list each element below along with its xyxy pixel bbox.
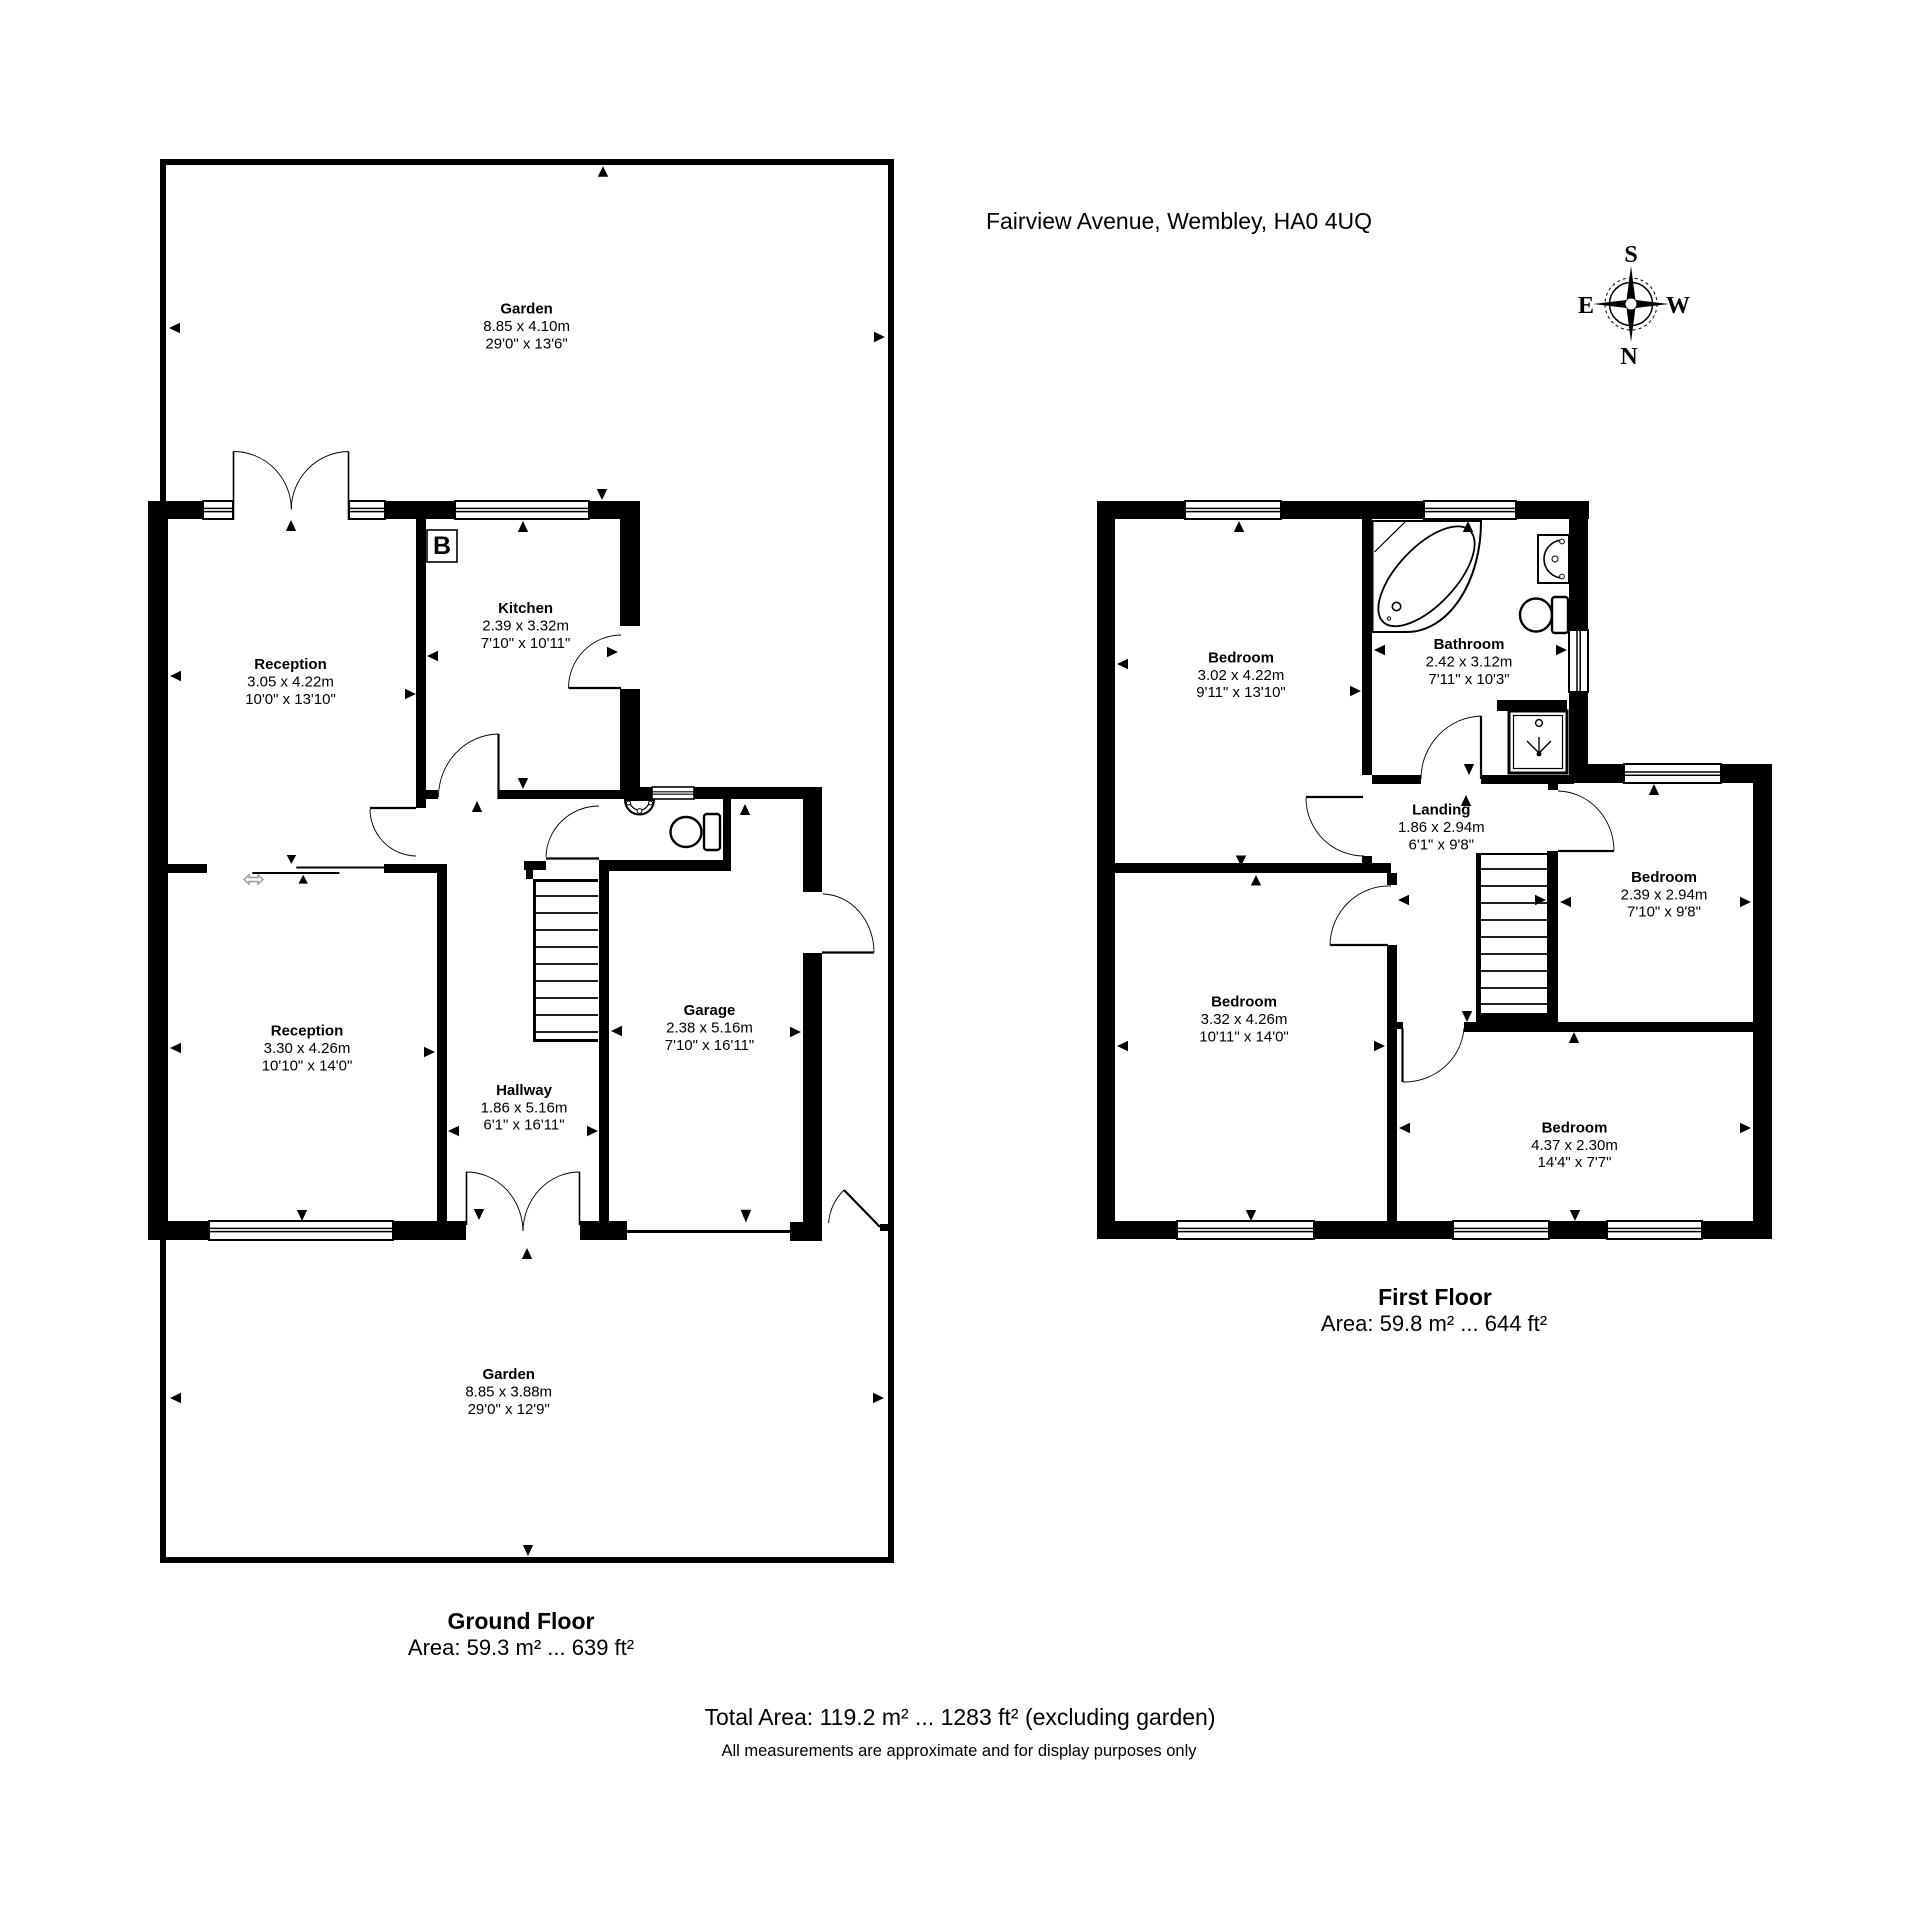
svg-text:3.30 x 4.26m: 3.30 x 4.26m bbox=[264, 1040, 351, 1057]
svg-text:Bedroom: Bedroom bbox=[1631, 869, 1697, 886]
svg-text:Garden: Garden bbox=[500, 301, 553, 318]
svg-text:1.86 x 5.16m: 1.86 x 5.16m bbox=[481, 1099, 568, 1116]
svg-text:2.39 x 2.94m: 2.39 x 2.94m bbox=[1621, 886, 1708, 903]
svg-text:Landing: Landing bbox=[1412, 802, 1470, 819]
svg-text:Area: 59.8 m² ... 644 ft²: Area: 59.8 m² ... 644 ft² bbox=[1321, 1311, 1547, 1336]
svg-text:8.85 x 3.88m: 8.85 x 3.88m bbox=[465, 1383, 552, 1400]
svg-text:8.85 x 4.10m: 8.85 x 4.10m bbox=[483, 318, 570, 335]
svg-text:29'0" x 12'9": 29'0" x 12'9" bbox=[468, 1401, 550, 1418]
svg-text:Reception: Reception bbox=[271, 1023, 344, 1040]
svg-text:6'1" x 16'11": 6'1" x 16'11" bbox=[483, 1117, 564, 1134]
svg-text:Bedroom: Bedroom bbox=[1211, 994, 1277, 1011]
svg-text:9'11" x 13'10": 9'11" x 13'10" bbox=[1196, 684, 1286, 701]
svg-text:10'11" x 14'0": 10'11" x 14'0" bbox=[1199, 1028, 1289, 1045]
svg-text:10'10" x 14'0": 10'10" x 14'0" bbox=[262, 1057, 353, 1074]
svg-text:2.38 x 5.16m: 2.38 x 5.16m bbox=[666, 1020, 753, 1037]
svg-text:First Floor: First Floor bbox=[1378, 1284, 1492, 1310]
svg-text:1.86 x 2.94m: 1.86 x 2.94m bbox=[1398, 819, 1485, 836]
svg-text:14'4" x 7'7": 14'4" x 7'7" bbox=[1538, 1154, 1612, 1171]
svg-text:Reception: Reception bbox=[254, 656, 327, 673]
svg-text:Kitchen: Kitchen bbox=[498, 600, 553, 617]
svg-text:10'0" x 13'10": 10'0" x 13'10" bbox=[245, 691, 336, 708]
svg-text:All measurements are approxima: All measurements are approximate and for… bbox=[721, 1742, 1197, 1760]
svg-text:3.02 x 4.22m: 3.02 x 4.22m bbox=[1198, 667, 1285, 684]
svg-text:B: B bbox=[433, 532, 451, 560]
svg-text:Garage: Garage bbox=[684, 1002, 736, 1019]
svg-text:N: N bbox=[1620, 344, 1638, 370]
svg-text:Ground Floor: Ground Floor bbox=[448, 1608, 595, 1634]
svg-text:W: W bbox=[1666, 293, 1690, 319]
svg-text:Bedroom: Bedroom bbox=[1208, 649, 1274, 666]
svg-text:7'10" x 16'11": 7'10" x 16'11" bbox=[665, 1037, 755, 1054]
svg-text:Bedroom: Bedroom bbox=[1542, 1119, 1608, 1136]
svg-text:7'11" x 10'3": 7'11" x 10'3" bbox=[1428, 671, 1509, 688]
svg-text:7'10" x 9'8": 7'10" x 9'8" bbox=[1627, 904, 1701, 921]
svg-text:2.42 x 3.12m: 2.42 x 3.12m bbox=[1426, 654, 1513, 671]
svg-text:Area: 59.3 m² ... 639 ft²: Area: 59.3 m² ... 639 ft² bbox=[408, 1635, 634, 1660]
svg-text:Garden: Garden bbox=[482, 1366, 535, 1383]
svg-text:7'10" x 10'11": 7'10" x 10'11" bbox=[481, 635, 571, 652]
svg-text:3.32 x 4.26m: 3.32 x 4.26m bbox=[1201, 1011, 1288, 1028]
svg-text:3.05 x 4.22m: 3.05 x 4.22m bbox=[247, 673, 334, 690]
svg-text:2.39 x 3.32m: 2.39 x 3.32m bbox=[482, 617, 569, 634]
svg-text:S: S bbox=[1624, 242, 1637, 268]
svg-text:Fairview Avenue, Wembley, HA0: Fairview Avenue, Wembley, HA0 4UQ bbox=[986, 208, 1372, 234]
svg-text:4.37 x 2.30m: 4.37 x 2.30m bbox=[1531, 1137, 1618, 1154]
svg-text:Bathroom: Bathroom bbox=[1434, 636, 1505, 653]
svg-text:Hallway: Hallway bbox=[496, 1082, 553, 1099]
svg-text:6'1" x 9'8": 6'1" x 9'8" bbox=[1409, 836, 1475, 853]
svg-text:E: E bbox=[1578, 293, 1594, 319]
svg-text:Total Area: 119.2 m² ... 1283: Total Area: 119.2 m² ... 1283 ft² (exclu… bbox=[705, 1704, 1216, 1730]
svg-text:29'0" x 13'6": 29'0" x 13'6" bbox=[485, 336, 567, 353]
